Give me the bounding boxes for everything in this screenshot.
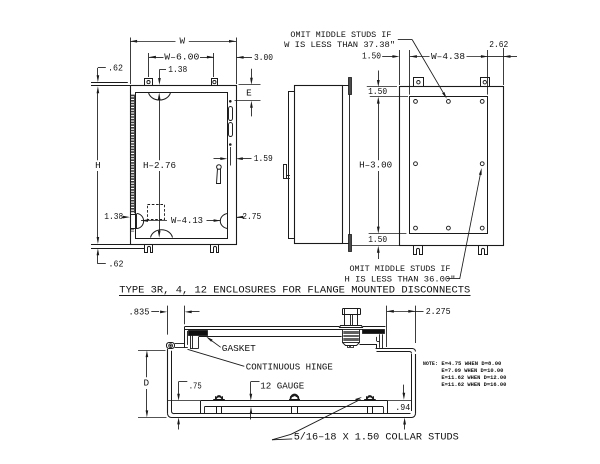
svg-text:H IS LESS THAN 36.00″: H IS LESS THAN 36.00″	[345, 274, 456, 284]
svg-text:W IS LESS THAN 37.38″: W IS LESS THAN 37.38″	[284, 40, 395, 50]
svg-text:H: H	[95, 160, 101, 171]
svg-text:2.75: 2.75	[242, 211, 261, 222]
svg-text:NOTE:: NOTE:	[423, 360, 438, 367]
svg-text:12 GAUGE: 12 GAUGE	[260, 380, 304, 391]
svg-text:.62: .62	[109, 258, 124, 269]
svg-text:.835: .835	[129, 306, 150, 317]
svg-text:CONTINUOUS HINGE: CONTINUOUS HINGE	[246, 362, 333, 373]
svg-text:W–4.38: W–4.38	[431, 51, 465, 62]
svg-text:H–3.00: H–3.00	[359, 160, 392, 171]
svg-text:OMIT MIDDLE STUDS IF: OMIT MIDDLE STUDS IF	[350, 264, 451, 274]
svg-text:OMIT MIDDLE STUDS IF: OMIT MIDDLE STUDS IF	[290, 30, 391, 40]
svg-text:E=11.62 WHEN D=16.00: E=11.62 WHEN D=16.00	[441, 381, 506, 388]
svg-text:D: D	[144, 378, 150, 389]
svg-text:1.50: 1.50	[368, 234, 387, 245]
svg-text:E=4.75 WHEN D=8.00: E=4.75 WHEN D=8.00	[441, 360, 501, 367]
svg-text:2.62: 2.62	[489, 39, 508, 50]
svg-text:E=7.09 WHEN D=10.00: E=7.09 WHEN D=10.00	[441, 367, 503, 374]
svg-text:1.38: 1.38	[168, 64, 187, 75]
svg-text:1.50: 1.50	[362, 51, 381, 62]
svg-text:.75: .75	[189, 380, 202, 391]
svg-text:1.59: 1.59	[254, 153, 273, 164]
svg-text:H–2.76: H–2.76	[143, 160, 176, 171]
svg-text:E: E	[246, 87, 252, 98]
svg-text:1.38: 1.38	[104, 211, 123, 222]
svg-text:.62: .62	[108, 62, 123, 73]
svg-text:.94: .94	[395, 402, 410, 413]
svg-text:3.00: 3.00	[254, 52, 273, 63]
svg-text:W–4.13: W–4.13	[171, 215, 203, 226]
svg-text:2.275: 2.275	[426, 306, 451, 317]
svg-text:E=11.62 WHEN D=12.00: E=11.62 WHEN D=12.00	[441, 374, 506, 381]
svg-text:5/16–18 X 1.50 COLLAR STUDS: 5/16–18 X 1.50 COLLAR STUDS	[294, 432, 459, 444]
svg-text:GASKET: GASKET	[222, 343, 256, 354]
svg-text:W–6.00: W–6.00	[164, 52, 199, 63]
svg-text:1.50: 1.50	[368, 86, 387, 97]
svg-text:W: W	[180, 36, 186, 47]
svg-text:TYPE 3R, 4, 12 ENCLOSURES FOR: TYPE 3R, 4, 12 ENCLOSURES FOR FLANGE MOU…	[119, 284, 470, 296]
